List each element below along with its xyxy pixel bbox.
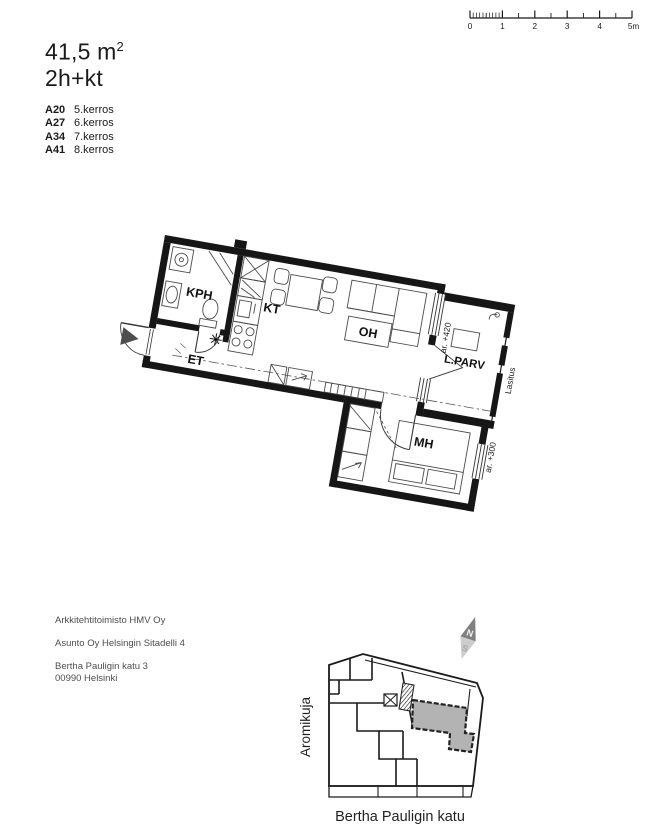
balcony-glazing-line <box>492 312 511 420</box>
scale-label-4: 4 <box>597 22 602 31</box>
scale-label-5: 5m <box>628 22 640 31</box>
room-label-kph: KPH <box>185 285 213 303</box>
pillow <box>393 464 424 484</box>
bed <box>389 421 471 495</box>
room-label-oh: OH <box>358 324 379 341</box>
sink-icon <box>162 281 182 308</box>
street-label-aromikuja: Aromikuja <box>298 696 313 757</box>
site-bottom-band <box>329 786 473 797</box>
chair <box>322 276 338 293</box>
dining-table <box>286 274 323 310</box>
chair <box>318 297 334 314</box>
wardrobe <box>342 427 371 455</box>
living-room-furniture <box>268 269 427 407</box>
room-label-lparv: L.PARV <box>443 353 486 372</box>
street-label-bertha-pauligin-katu: Bertha Pauligin katu <box>335 809 465 825</box>
north-arrow-icon: N S <box>454 615 483 662</box>
balcony-table <box>451 329 480 351</box>
walls <box>127 227 518 513</box>
site-interior-walls <box>329 658 417 786</box>
bathroom-door <box>195 331 219 355</box>
scale-label-2: 2 <box>533 22 538 31</box>
room-label-kt: KT <box>262 300 281 317</box>
leader-marks <box>175 343 187 355</box>
shower-mark <box>204 251 237 285</box>
drawing-canvas: 0 1 2 3 4 5m <box>0 0 652 840</box>
doors <box>108 291 465 456</box>
floor-plan: KPH ET KT OH L.PARV MH ar. +420 Lasitus … <box>99 222 530 515</box>
kitchen-sink-icon <box>233 296 262 326</box>
scale-label-0: 0 <box>468 22 473 31</box>
room-label-mh: MH <box>413 435 435 452</box>
room-label-et: ET <box>187 352 206 369</box>
glazing-note: Lasitus <box>503 367 518 395</box>
pillow <box>426 469 457 489</box>
highlighted-unit <box>412 700 474 752</box>
scale-label-3: 3 <box>565 22 570 31</box>
balcony-items <box>451 306 500 354</box>
stair-core-icon <box>384 694 397 706</box>
washing-machine-icon <box>169 247 194 273</box>
scale-bar: 0 1 2 3 4 5m <box>468 11 640 32</box>
entrance-arrow-icon <box>120 327 140 348</box>
site-plan: N S Aromikuja Bertha Pauligin katu <box>298 615 483 825</box>
scale-label-1: 1 <box>500 22 505 31</box>
chair <box>273 268 289 285</box>
site-band-dividers <box>378 786 463 797</box>
sofa <box>343 280 427 346</box>
stove-icon <box>228 321 258 355</box>
scale-labels: 0 1 2 3 4 5m <box>468 22 640 31</box>
scale-half-ticks <box>486 13 616 18</box>
